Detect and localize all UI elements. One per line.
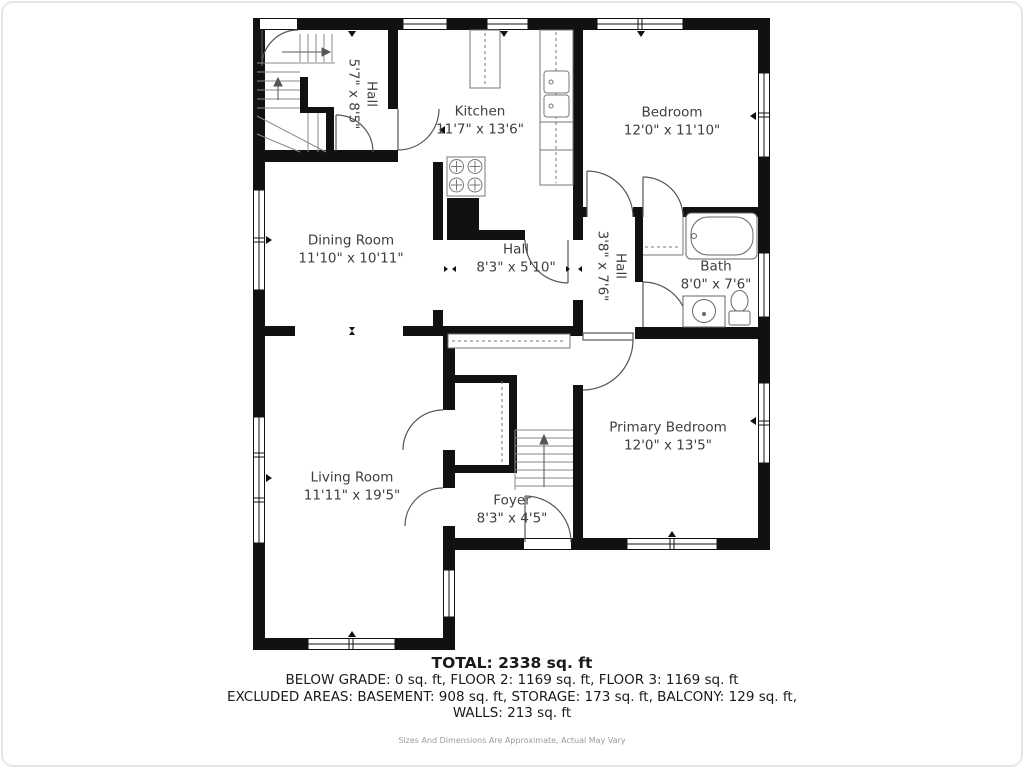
room-label-hall-center: Hall 8'3" x 5'10" — [476, 241, 555, 276]
disclaimer: Sizes And Dimensions Are Approximate, Ac… — [0, 736, 1024, 745]
room-label-living-room: Living Room 11'11" x 19'5" — [304, 469, 401, 504]
balcony-door — [262, 30, 298, 66]
bath-sink — [683, 296, 725, 327]
floorplan-page: Hall 5'7" x 8'5" Kitchen 11'7" x 13'6" B… — [0, 0, 1024, 768]
stair-arrow-foyer — [540, 435, 548, 487]
area-summary: TOTAL: 2338 sq. ft BELOW GRADE: 0 sq. ft… — [0, 654, 1024, 745]
room-label-hall-upper: Hall 5'7" x 8'5" — [344, 59, 379, 130]
stove — [447, 157, 485, 196]
room-label-bedroom: Bedroom 12'0" x 11'10" — [624, 104, 721, 139]
sink-basin — [544, 95, 569, 117]
room-label-primary-bedroom: Primary Bedroom 12'0" x 13'5" — [609, 419, 727, 454]
toilet — [729, 291, 750, 326]
room-label-foyer: Foyer 8'3" x 4'5" — [477, 492, 548, 527]
living-foyer-door — [405, 488, 443, 526]
chimney — [447, 198, 479, 240]
floor-areas: BELOW GRADE: 0 sq. ft, FLOOR 2: 1169 sq.… — [0, 672, 1024, 689]
sink-basin — [544, 71, 569, 93]
walls-area: WALLS: 213 sq. ft — [0, 705, 1024, 722]
room-label-bath: Bath 8'0" x 7'6" — [681, 258, 752, 293]
room-label-dining-room: Dining Room 11'10" x 10'11" — [298, 232, 403, 267]
room-label-kitchen: Kitchen 11'7" x 13'6" — [436, 103, 524, 138]
excluded-areas: EXCLUDED AREAS: BASEMENT: 908 sq. ft, ST… — [0, 689, 1024, 706]
bedroom-closet-door — [643, 177, 683, 217]
bedroom-door — [587, 171, 633, 217]
primary-bedroom-door — [583, 340, 633, 390]
kitchen-door — [398, 109, 439, 150]
living-closet-door — [403, 410, 443, 450]
room-label-hall-corridor: Hall 3'8" x 7'6" — [593, 231, 628, 302]
total-area: TOTAL: 2338 sq. ft — [0, 654, 1024, 672]
bathtub — [686, 213, 757, 259]
